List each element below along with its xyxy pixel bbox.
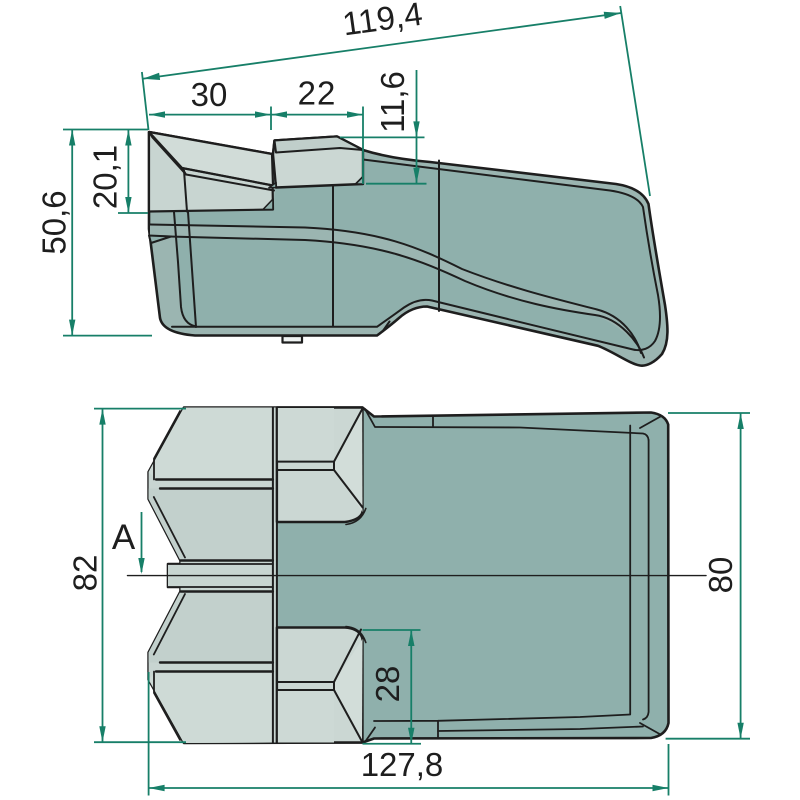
svg-text:A: A bbox=[112, 518, 136, 557]
svg-text:28: 28 bbox=[369, 666, 406, 703]
svg-text:22: 22 bbox=[298, 75, 337, 112]
svg-text:50,6: 50,6 bbox=[36, 190, 73, 254]
svg-text:80: 80 bbox=[702, 557, 739, 594]
svg-text:82: 82 bbox=[67, 555, 104, 592]
svg-text:11,6: 11,6 bbox=[374, 71, 411, 133]
svg-text:30: 30 bbox=[191, 76, 228, 113]
svg-text:127,8: 127,8 bbox=[361, 746, 444, 783]
svg-text:20,1: 20,1 bbox=[87, 145, 124, 209]
